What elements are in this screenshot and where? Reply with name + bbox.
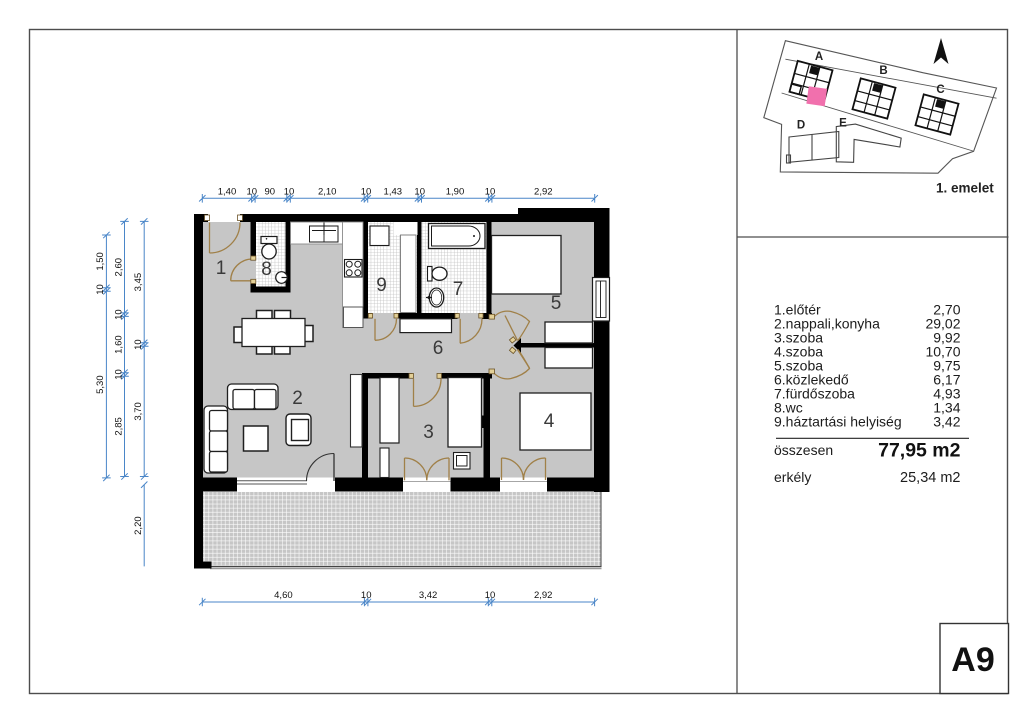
svg-text:3: 3 <box>423 422 434 443</box>
svg-text:1,60: 1,60 <box>113 335 124 354</box>
svg-text:erkély: erkély <box>774 469 811 485</box>
svg-text:9: 9 <box>376 275 387 296</box>
svg-text:10: 10 <box>361 187 372 198</box>
svg-text:összesen: összesen <box>774 442 833 458</box>
svg-text:1,50: 1,50 <box>95 252 106 271</box>
svg-text:10: 10 <box>361 590 372 601</box>
svg-text:10: 10 <box>247 187 258 198</box>
svg-text:A: A <box>815 51 823 63</box>
svg-text:1,40: 1,40 <box>218 187 237 198</box>
svg-text:5: 5 <box>551 293 562 314</box>
svg-text:9.háztartási helyiség: 9.háztartási helyiség <box>774 414 902 430</box>
svg-text:A9: A9 <box>951 641 994 679</box>
svg-text:5,30: 5,30 <box>95 375 106 394</box>
svg-text:4: 4 <box>544 411 555 432</box>
svg-text:10: 10 <box>284 187 295 198</box>
svg-text:1,90: 1,90 <box>446 187 465 198</box>
svg-text:2: 2 <box>292 388 303 409</box>
svg-text:2,10: 2,10 <box>318 187 337 198</box>
svg-text:3,70: 3,70 <box>133 402 144 421</box>
svg-text:8: 8 <box>261 259 272 280</box>
svg-text:2,60: 2,60 <box>113 258 124 277</box>
svg-text:E: E <box>839 118 847 130</box>
svg-text:3,42: 3,42 <box>933 414 960 430</box>
svg-text:1: 1 <box>216 258 227 279</box>
svg-text:10: 10 <box>485 187 496 198</box>
svg-text:77,95 m2: 77,95 m2 <box>878 440 961 462</box>
svg-text:3,45: 3,45 <box>133 273 144 292</box>
svg-text:10: 10 <box>95 284 106 295</box>
svg-text:6: 6 <box>433 338 444 359</box>
svg-text:D: D <box>797 120 805 132</box>
svg-text:2,92: 2,92 <box>534 590 553 601</box>
svg-text:10: 10 <box>133 339 144 350</box>
svg-text:2,20: 2,20 <box>133 516 144 535</box>
svg-text:10: 10 <box>113 369 124 380</box>
svg-text:2,92: 2,92 <box>534 187 553 198</box>
svg-text:10: 10 <box>414 187 425 198</box>
svg-text:1,43: 1,43 <box>384 187 403 198</box>
svg-text:2,85: 2,85 <box>113 417 124 436</box>
svg-text:25,34 m2: 25,34 m2 <box>900 470 960 486</box>
svg-text:90: 90 <box>265 187 276 198</box>
svg-text:C: C <box>936 84 944 96</box>
svg-text:7: 7 <box>453 279 464 300</box>
svg-text:10: 10 <box>485 590 496 601</box>
svg-text:4,60: 4,60 <box>274 590 293 601</box>
svg-text:B: B <box>879 65 887 77</box>
svg-text:1. emelet: 1. emelet <box>936 181 994 196</box>
svg-text:10: 10 <box>113 309 124 320</box>
svg-text:3,42: 3,42 <box>419 590 438 601</box>
